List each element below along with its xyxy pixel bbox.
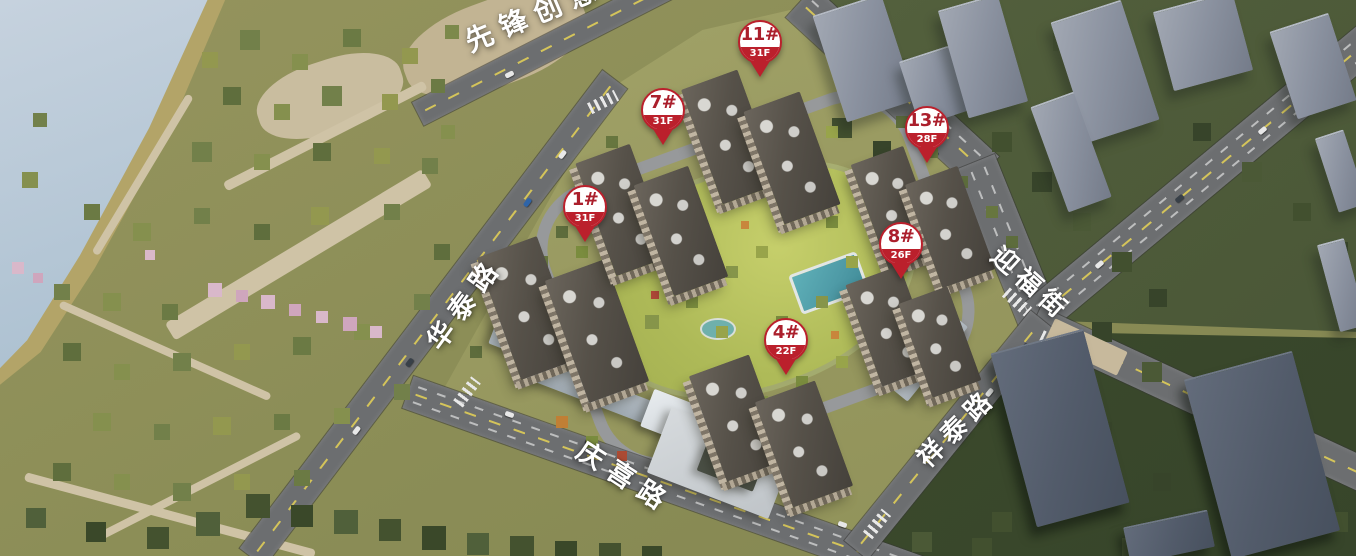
marker-pointer xyxy=(891,263,911,279)
building-marker-4[interactable]: 4# 22F xyxy=(764,318,808,362)
marker-building-number: 1# xyxy=(565,188,605,212)
marker-circle: 1# 31F xyxy=(563,185,607,229)
aerial-masterplan-rendering: 先锋创意 华泰路 迎福街 祥泰路 庆喜路 1# 31F 7# 31F 11# 3… xyxy=(0,0,1356,556)
marker-building-number: 7# xyxy=(643,91,683,115)
marker-floor-count: 28F xyxy=(907,133,947,148)
marker-building-number: 4# xyxy=(766,321,806,345)
building-marker-7[interactable]: 7# 31F xyxy=(641,88,685,132)
building-marker-11[interactable]: 11# 31F xyxy=(738,20,782,64)
garden-pond xyxy=(700,318,736,340)
marker-floor-count: 31F xyxy=(740,47,780,62)
marker-pointer xyxy=(653,129,673,145)
marker-floor-count: 31F xyxy=(643,115,683,130)
marker-circle: 13# 28F xyxy=(905,106,949,150)
marker-circle: 7# 31F xyxy=(641,88,685,132)
marker-floor-count: 31F xyxy=(565,212,605,227)
building-marker-13[interactable]: 13# 28F xyxy=(905,106,949,150)
marker-pointer xyxy=(917,147,937,163)
marker-circle: 8# 26F xyxy=(879,222,923,266)
building-marker-1[interactable]: 1# 31F xyxy=(563,185,607,229)
marker-floor-count: 26F xyxy=(881,249,921,264)
marker-circle: 11# 31F xyxy=(738,20,782,64)
marker-building-number: 8# xyxy=(881,225,921,249)
building-marker-8[interactable]: 8# 26F xyxy=(879,222,923,266)
marker-floor-count: 22F xyxy=(766,345,806,360)
marker-pointer xyxy=(575,226,595,242)
marker-circle: 4# 22F xyxy=(764,318,808,362)
marker-pointer xyxy=(750,61,770,77)
marker-building-number: 13# xyxy=(907,109,947,133)
marker-pointer xyxy=(776,359,796,375)
marker-building-number: 11# xyxy=(740,23,780,47)
